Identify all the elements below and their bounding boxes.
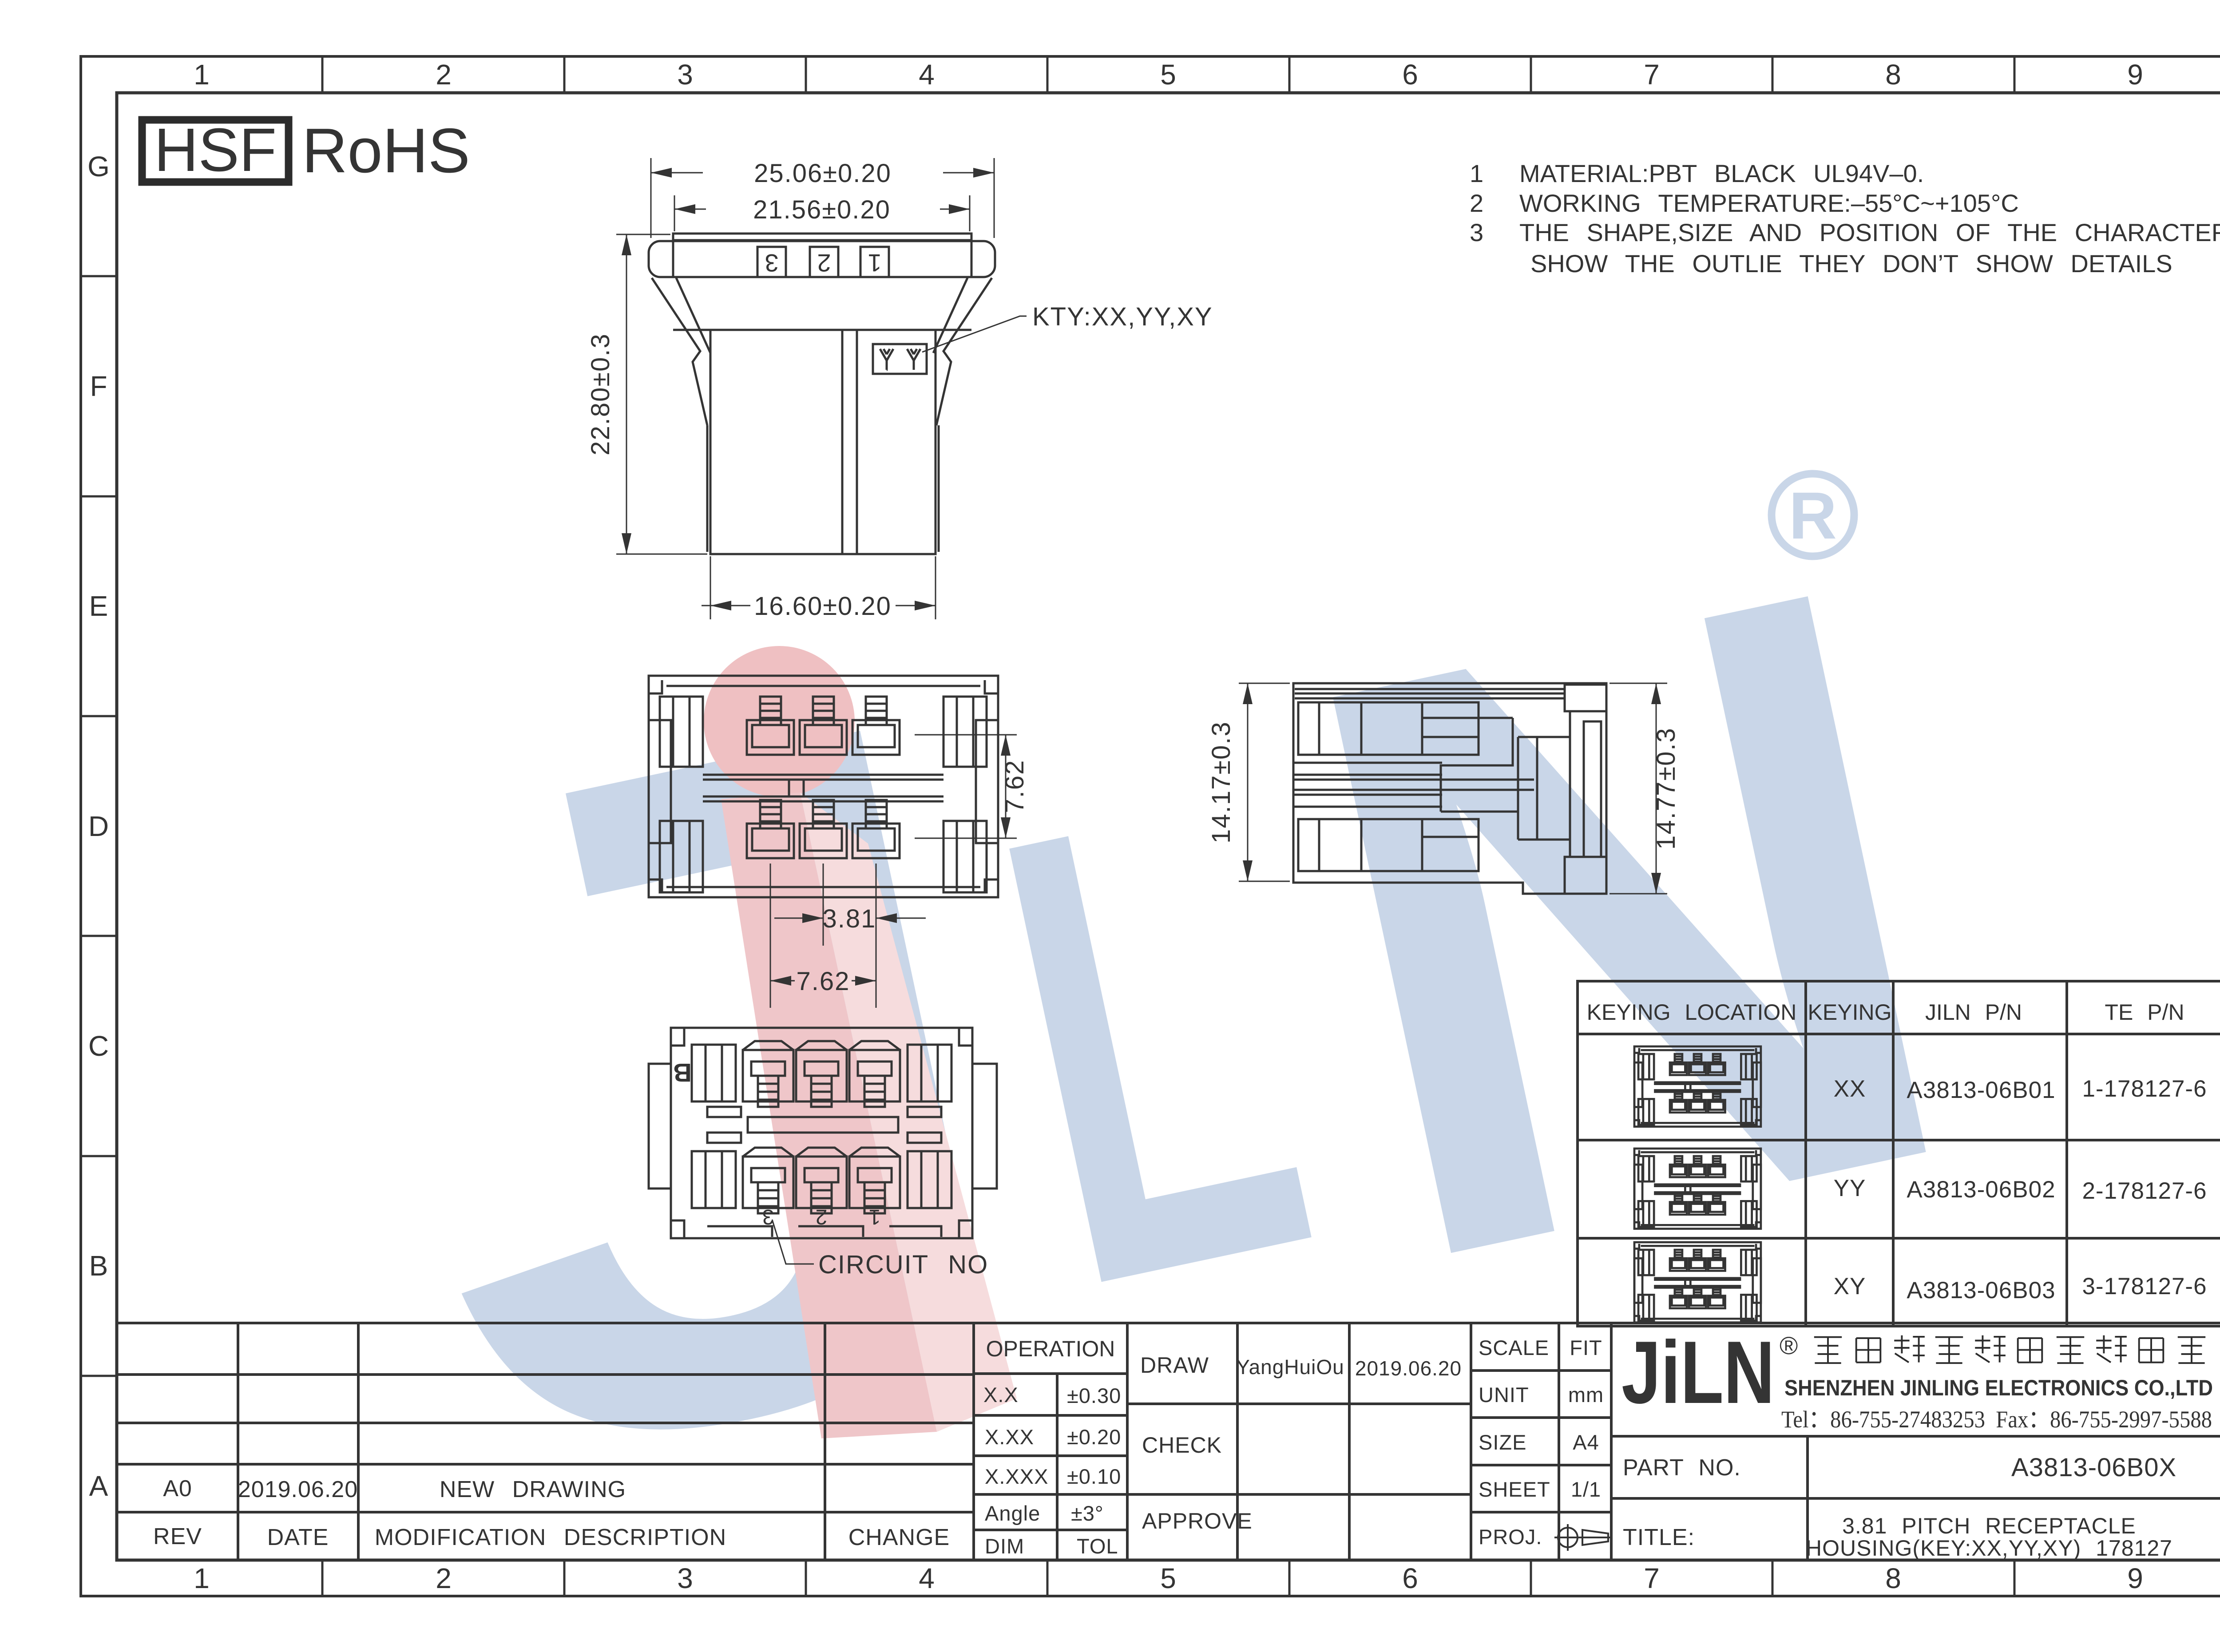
svg-text:KTY:XX,YY,XY: KTY:XX,YY,XY — [1032, 302, 1213, 331]
svg-text:22.80±0.3: 22.80±0.3 — [586, 333, 615, 456]
svg-text:21.56±0.20: 21.56±0.20 — [753, 195, 891, 224]
svg-text:3: 3 — [1470, 218, 1483, 246]
svg-text:±3°: ±3° — [1071, 1501, 1104, 1525]
svg-text:4: 4 — [919, 59, 935, 91]
svg-text:SHEET: SHEET — [1479, 1478, 1550, 1501]
svg-text:FIT: FIT — [1570, 1336, 1602, 1359]
svg-text:3.81: 3.81 — [823, 904, 876, 933]
svg-text:A3813-06B03: A3813-06B03 — [1907, 1277, 2055, 1303]
svg-text:CIRCUIT NO: CIRCUIT NO — [818, 1250, 988, 1279]
svg-text:±0.30: ±0.30 — [1067, 1384, 1121, 1407]
svg-text:2: 2 — [1470, 189, 1483, 217]
svg-text:R: R — [1789, 478, 1837, 553]
svg-text:1: 1 — [868, 249, 881, 277]
svg-text:SIZE: SIZE — [1479, 1430, 1526, 1454]
svg-text:3-178127-6: 3-178127-6 — [2082, 1273, 2207, 1299]
svg-text:1: 1 — [1470, 159, 1483, 187]
svg-text:TE P/N: TE P/N — [2105, 1000, 2184, 1025]
svg-text:SHENZHEN JINLING ELECTRONICS C: SHENZHEN JINLING ELECTRONICS CO.,LTD — [1784, 1375, 2213, 1400]
svg-text:NEW DRAWING: NEW DRAWING — [440, 1477, 626, 1502]
svg-text:CHANGE: CHANGE — [848, 1525, 950, 1550]
svg-text:A4: A4 — [1573, 1430, 1599, 1454]
svg-text:6: 6 — [1402, 59, 1418, 91]
svg-text:B: B — [673, 1058, 692, 1087]
svg-text:MATERIAL:PBT BLACK UL94V–0.: MATERIAL:PBT BLACK UL94V–0. — [1519, 159, 1924, 187]
svg-text:X.XX: X.XX — [985, 1425, 1034, 1449]
svg-text:A: A — [89, 1470, 108, 1502]
svg-text:A3813-06B0X: A3813-06B0X — [2011, 1453, 2176, 1482]
svg-text:3: 3 — [677, 1562, 693, 1594]
svg-text:7: 7 — [1644, 59, 1660, 91]
svg-text:APPROVE: APPROVE — [1142, 1509, 1253, 1533]
svg-text:SHOW THE OUTLIE THEY DON’T SHO: SHOW THE OUTLIE THEY DON’T SHOW DETAILS — [1530, 250, 2172, 277]
svg-text:X.XXX: X.XXX — [985, 1465, 1048, 1488]
svg-text:7: 7 — [1644, 1562, 1660, 1594]
svg-text:3.81 PITCH RECEPTACLE: 3.81 PITCH RECEPTACLE — [1842, 1513, 2136, 1538]
svg-text:3: 3 — [762, 1205, 774, 1228]
svg-text:2019.06.20: 2019.06.20 — [238, 1477, 358, 1502]
svg-text:3: 3 — [765, 249, 778, 277]
svg-text:PROJ.: PROJ. — [1479, 1525, 1542, 1549]
svg-text:2: 2 — [817, 249, 831, 277]
svg-text:YY: YY — [1834, 1175, 1866, 1201]
svg-text:F: F — [90, 370, 107, 402]
svg-text:KEYING LOCATION: KEYING LOCATION — [1587, 1000, 1797, 1025]
svg-text:RoHS: RoHS — [302, 115, 470, 186]
svg-text:D: D — [88, 810, 109, 842]
svg-text:JILN P/N: JILN P/N — [1925, 1000, 2022, 1025]
svg-text:2019.06.20: 2019.06.20 — [1355, 1357, 1462, 1380]
svg-text:7.62: 7.62 — [1000, 760, 1029, 813]
svg-text:TOL: TOL — [1077, 1534, 1118, 1558]
svg-text:TITLE:: TITLE: — [1623, 1525, 1695, 1550]
svg-text:8: 8 — [1885, 1562, 1901, 1594]
svg-text:A3813-06B02: A3813-06B02 — [1907, 1177, 2055, 1203]
svg-text:9: 9 — [2127, 59, 2143, 91]
svg-text:MODIFICATION DESCRIPTION: MODIFICATION DESCRIPTION — [375, 1525, 726, 1550]
svg-text:9: 9 — [2127, 1562, 2143, 1594]
svg-text:XY: XY — [1834, 1273, 1866, 1299]
svg-text:WORKING TEMPERATURE:–55°C~+105: WORKING TEMPERATURE:–55°C~+105°C — [1519, 189, 2019, 217]
svg-text:DIM: DIM — [985, 1534, 1024, 1558]
svg-text:2: 2 — [436, 59, 452, 91]
svg-text:C: C — [88, 1030, 109, 1062]
svg-text:B: B — [89, 1250, 108, 1282]
svg-text:YangHuiOu: YangHuiOu — [1236, 1355, 1344, 1379]
svg-text:DATE: DATE — [267, 1525, 329, 1550]
svg-text:±0.10: ±0.10 — [1067, 1465, 1121, 1488]
svg-text:XX: XX — [1834, 1076, 1866, 1102]
svg-text:E: E — [89, 590, 108, 622]
svg-text:HSF: HSF — [154, 116, 277, 184]
svg-text:8: 8 — [1885, 59, 1901, 91]
svg-text:1: 1 — [869, 1205, 881, 1228]
svg-text:DRAW: DRAW — [1140, 1353, 1209, 1378]
svg-text:mm: mm — [1568, 1383, 1604, 1406]
svg-text:3: 3 — [677, 59, 693, 91]
svg-text:±0.20: ±0.20 — [1067, 1425, 1121, 1449]
svg-text:6: 6 — [1402, 1562, 1418, 1594]
svg-text:1: 1 — [194, 1562, 210, 1594]
svg-text:JiLN: JiLN — [1621, 1323, 1775, 1422]
svg-text:1: 1 — [194, 59, 210, 91]
svg-text:OPERATION: OPERATION — [986, 1336, 1115, 1361]
svg-text:Tel：86-755-27483253 Fax：86-75: Tel：86-755-27483253 Fax：86-755-2997-5588 — [1781, 1406, 2212, 1433]
svg-text:5: 5 — [1160, 1562, 1176, 1594]
svg-text:CHECK: CHECK — [1142, 1433, 1222, 1458]
svg-text:2: 2 — [436, 1562, 452, 1594]
svg-text:KEYING: KEYING — [1808, 1000, 1892, 1025]
svg-text:UNIT: UNIT — [1479, 1383, 1529, 1406]
svg-text:25.06±0.20: 25.06±0.20 — [754, 159, 892, 188]
svg-text:2-178127-6: 2-178127-6 — [2082, 1178, 2207, 1204]
svg-text:Angle: Angle — [985, 1501, 1040, 1525]
svg-text:1-178127-6: 1-178127-6 — [2082, 1076, 2207, 1102]
svg-text:7.62: 7.62 — [797, 967, 850, 996]
svg-text:14.17±0.3: 14.17±0.3 — [1207, 721, 1236, 844]
svg-text:14.77±0.3: 14.77±0.3 — [1652, 727, 1681, 850]
svg-text:®: ® — [1780, 1331, 1798, 1359]
svg-text:REV: REV — [153, 1524, 202, 1549]
svg-text:1/1: 1/1 — [1571, 1478, 1601, 1501]
svg-text:PART NO.: PART NO. — [1623, 1455, 1741, 1481]
svg-text:5: 5 — [1160, 59, 1176, 91]
svg-text:X.X: X.X — [983, 1383, 1019, 1406]
svg-text:2: 2 — [816, 1205, 828, 1228]
svg-text:HOUSING(KEY:XX,YY,XY) 178127: HOUSING(KEY:XX,YY,XY) 178127 — [1806, 1536, 2172, 1561]
svg-text:4: 4 — [919, 1562, 935, 1594]
svg-text:G: G — [87, 151, 110, 182]
svg-text:THE SHAPE,SIZE AND POSITION OF: THE SHAPE,SIZE AND POSITION OF THE CHARA… — [1519, 218, 2220, 246]
svg-text:A0: A0 — [163, 1476, 192, 1501]
svg-text:16.60±0.20: 16.60±0.20 — [754, 592, 892, 621]
svg-text:A3813-06B01: A3813-06B01 — [1907, 1077, 2055, 1103]
svg-text:SCALE: SCALE — [1479, 1336, 1549, 1359]
